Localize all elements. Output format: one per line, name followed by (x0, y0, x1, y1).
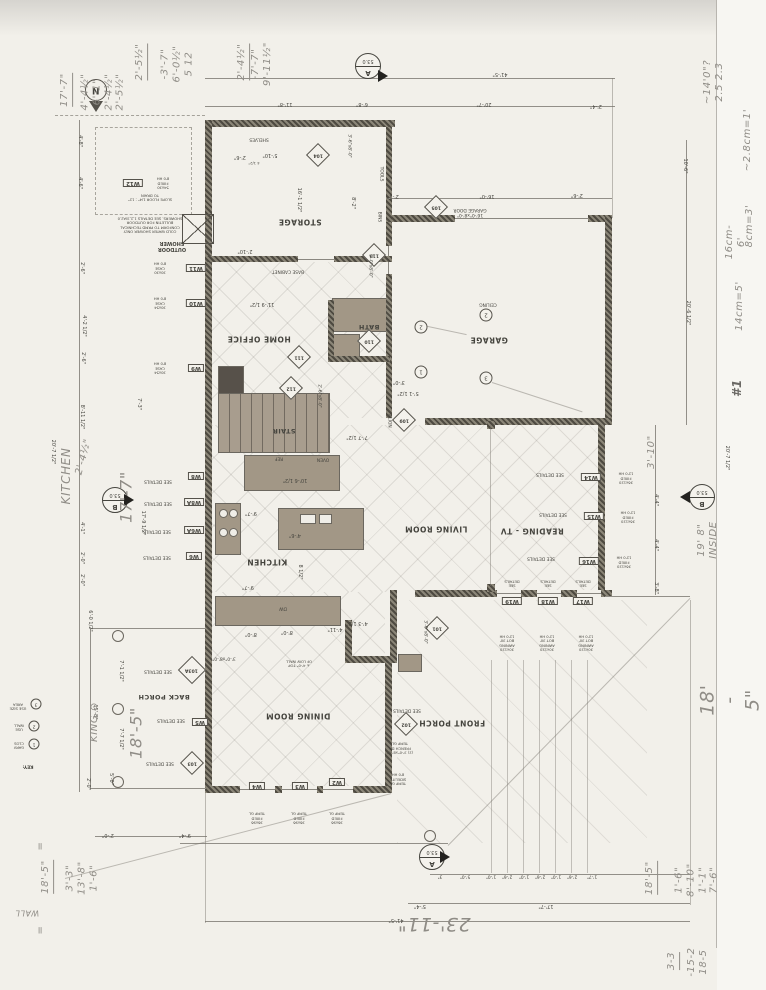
window-w17-opening (577, 590, 601, 597)
hand-br-calc1: 1'-6" 8'-10" 1'-1" 7'-6" (673, 863, 720, 897)
dim-top-total: 41'-5" (492, 70, 507, 76)
island-sink (300, 514, 316, 524)
keynote-2: 2 (415, 321, 428, 334)
island-sink-2 (319, 514, 332, 524)
label-oven: OVEN (317, 456, 329, 461)
wall-garage-south (425, 418, 612, 425)
dim: 11'-8" (277, 100, 292, 106)
window-tag-w11: W11 (186, 264, 206, 272)
note-slope: SLOPE FLOOR 1/4" : 12" TO DRAIN (128, 193, 172, 202)
dim: 5'-0" (107, 773, 113, 785)
label-dw: DW (279, 605, 287, 610)
hand-dim-310: 3'-10" (646, 435, 658, 469)
keynote-leader (427, 326, 466, 335)
dim: 9'-4" (179, 831, 191, 837)
label-ceiling: CEILING (479, 301, 497, 306)
dim: 5'-1 1/2" (397, 389, 418, 395)
dim: 4'-8" (76, 135, 82, 147)
window-spec-w10: 30x54 CASE 8'0 HH (154, 296, 166, 309)
label-tools: TOOLS (378, 167, 383, 182)
window-tag-w9: W9 (188, 364, 204, 372)
hand-br-calc1-result: 18'-5" (644, 861, 658, 895)
dim: 8'-2" (349, 197, 355, 209)
label-bins: BINS (376, 212, 381, 222)
dim: 8'-11 1/2" (78, 405, 84, 430)
window-tag-w6: W6 (186, 552, 202, 560)
note-sidelite: TEMP GL SIDELITE 8'0 HH (390, 772, 406, 785)
dim: 2'-1" (387, 192, 399, 198)
window-note-w17: SEE DETAILS (575, 579, 590, 588)
window-tag-w8: W8 (188, 472, 204, 480)
hand-calc-a-result: 2'-5½" (134, 44, 148, 81)
room-label-dining: DINING ROOM (266, 711, 331, 720)
window-note-w15: SEE DETAILS (539, 511, 567, 516)
reading-nook-post (487, 584, 495, 592)
hand-calc-a: -3'-7" 6'-0½" 5 12 (159, 46, 194, 83)
outdoor-shower-pan (182, 214, 214, 244)
extension-line (690, 600, 691, 905)
window-tag-w16: W16 (579, 557, 599, 565)
dim: 2'-6" (79, 352, 85, 364)
section-marker-a-top-arrow (378, 70, 388, 82)
dim: 7'-1 1/2" (117, 660, 123, 681)
key-item-1-label: GARV CLOS (14, 741, 24, 750)
wall-bath-west (328, 300, 334, 358)
window-spec-w12: 54x30 FIXED 8'0 HH (157, 176, 169, 189)
dim: 8'-0" (281, 628, 293, 634)
dim: 4'-1" (78, 522, 84, 534)
dim: 2'-6" (78, 262, 84, 274)
window-note-w14: SEE DETAILS (536, 471, 564, 476)
window-note-w16: SEE DETAILS (527, 555, 555, 560)
note-french-door: (2) 3'-0"x8'-0" FRENCH DR TEMP GL (387, 741, 413, 754)
hand-small-dim: 2'-4½" (74, 438, 95, 477)
window-note-w18: SEE DETAILS (540, 579, 555, 588)
window-note-w19: SEE DETAILS (504, 579, 519, 588)
wall-living-east (598, 418, 605, 592)
window-tag-w17: W17 (573, 597, 593, 605)
reading-nook-post (487, 421, 495, 429)
dim: 9'-7" (242, 583, 254, 589)
dim: 2'-0" (102, 831, 114, 837)
wall-bath-south (328, 356, 390, 362)
keynote-leader (492, 382, 583, 412)
porch-post (424, 830, 436, 842)
dim: 4'-11" (327, 625, 342, 631)
dim: 2'-10" (237, 247, 252, 253)
dim: 3" (438, 873, 443, 878)
dim: 4 1/2" (248, 161, 259, 165)
window-spec-w9: 30x54 CASE 8'0 HH (154, 361, 166, 374)
window-spec-w3: 36x96 FIXED TEMP GL (291, 811, 307, 824)
window-note-w6a: SEE DETAILS (143, 528, 171, 533)
hand-right-big-dim: 18' - 5" (696, 682, 763, 718)
porch-bench (398, 654, 422, 672)
window-spec-awning: 30x120 AWNING BOT 30' 12'0 HH (539, 634, 554, 651)
room-label-kitchen: KITCHEN (247, 557, 287, 566)
note-garage-door: 16'-0"x8'-0" GARAGE DOOR (453, 207, 486, 217)
hand-calc-topright: ~14'0"? 2.5 2.3 (702, 60, 726, 104)
label-outdoor-shower: OUTDOOR SHOWER (158, 239, 186, 251)
paper-edge-line (716, 0, 717, 948)
window-tag-w5: W5 (192, 718, 208, 726)
burner-icon (219, 509, 228, 518)
key-item-2-label: USE WALL (14, 723, 24, 732)
window-w2-opening (323, 786, 353, 793)
window-spec-w16: 36x120 FIXED 12'0 HH (617, 555, 632, 568)
dim: 16'-0" (479, 192, 494, 198)
window-tag-w10: W10 (186, 299, 206, 307)
dim-line (388, 198, 612, 199)
key-item-3-label: USE SIZE AREA (10, 702, 27, 711)
section-marker-b-right-arrow (680, 491, 690, 503)
room-label-living: LIVING ROOM (405, 524, 468, 533)
window-spec-w2: 36x96 FIXED TEMP GL (329, 811, 345, 824)
burner-icon (219, 528, 228, 537)
key-title: KEY: (23, 763, 34, 768)
dim-line (686, 140, 687, 425)
hand-number-1: #1 (730, 379, 744, 397)
dim: 7'-7 1/2" (117, 728, 123, 749)
label-ref: REF (275, 455, 283, 460)
hand-br-calc2-result: 3-3 (666, 952, 680, 970)
hand-calc-b-result: 2'-4½" (236, 44, 250, 81)
dim: 6'-8" (356, 100, 368, 106)
wall-garage-east (605, 215, 612, 425)
construction-dashed-rect (95, 127, 192, 215)
label-shelves: SHELVES (249, 136, 268, 141)
dim: 3'-8" (652, 582, 658, 594)
dim: 9'-7" (245, 509, 257, 515)
dim: 4'-2 1/2" (80, 315, 86, 336)
front-porch-edge-s (180, 843, 448, 844)
porch-post (112, 630, 124, 642)
burner-icon (229, 528, 238, 537)
dim: 20'-7 1/2" (723, 446, 729, 471)
door-tag-103: 103 (180, 751, 204, 775)
window-w19-opening (497, 590, 521, 597)
room-label-back-porch: BACK PORCH (138, 692, 190, 700)
hand-scale-note-3: 16cm-6' (724, 225, 748, 260)
hand-inside-note: 19' 8" INSIDE (696, 511, 720, 569)
dim: 6'-0 1/2" (86, 610, 92, 631)
dim: 2'-0" (84, 778, 90, 790)
room-label-storage: STORAGE (278, 217, 321, 226)
dim: 20'-7 1/2" (49, 440, 55, 465)
window-w18-opening (537, 590, 561, 597)
back-porch-edge-s (90, 788, 206, 789)
dim: 4'-6" (76, 177, 82, 189)
floor-plan-sheet: STORAGE GARAGE BATH HOME OFFICE STAIR KI… (0, 0, 766, 990)
kitchen-counter-south (215, 596, 341, 626)
door-104-opening (298, 256, 334, 262)
construction-dashed-line (55, 115, 205, 116)
window-tag-w19: W19 (502, 597, 522, 605)
window-spec-awning: 30x120 AWNING BOT 30' 12'0 HH (578, 634, 593, 651)
window-note-w5: SEE DETAILS (157, 717, 185, 722)
wall-storage-divider (386, 127, 392, 222)
note-back-door-size: 3'-0"x8'-0" (212, 655, 235, 660)
front-porch-edge-n (605, 596, 690, 597)
key-item-1-num: 1 (29, 739, 40, 750)
dim: 1'-0" (551, 873, 561, 878)
room-label-front-porch: FRONT PORCH (419, 718, 485, 727)
hand-bl-calc: 3'-3" 13'-8" 1'-6" (64, 861, 99, 895)
dim: 2'-0" (78, 574, 84, 586)
hand-scale-note-4: 14cm=5' (734, 281, 746, 331)
hand-kitchen-dim: 17'-7" (118, 471, 137, 523)
dim: 5'-4" (414, 902, 426, 908)
dim: 2'-0" (78, 552, 84, 564)
window-spec-awning: 30x120 AWNING BOT 30' 12'0 HH (499, 634, 514, 651)
dim: 7'-3" (135, 398, 141, 410)
dim: 4'-4" (652, 539, 658, 551)
hand-bottom-big-dim: 23'-11" (397, 913, 470, 935)
hand-bl-calc-result: 18'-5" (40, 860, 54, 894)
room-label-reading: READING - TV (500, 526, 563, 535)
window-tag-w12: W12 (123, 179, 143, 187)
window-spec-w14: 36x120 FIXED 12'0 HH (619, 471, 634, 484)
window-spec-w4: 36x96 FIXED TEMP GL (249, 811, 265, 824)
dim: 20'-7" (476, 100, 491, 106)
window-note-w6: SEE DETAILS (143, 554, 171, 559)
dim: 11'-9 1/2" (250, 300, 275, 306)
dim-line (205, 106, 615, 107)
window-note-w8a: SEE DETAILS (144, 500, 172, 505)
extension-line (612, 78, 613, 218)
hand-kitchen-word: KITCHEN (59, 448, 73, 505)
hand-nw-list: 4'-4½" 6'-1" 2'-4½" 2'-5½" (79, 74, 126, 111)
dim: 5'-0" (460, 873, 470, 878)
keynote-1: 1 (415, 366, 428, 379)
hand-scale-note-1: ~2.8cm=1' (742, 109, 754, 171)
label-base-cabinet: BASE CABINET (272, 268, 304, 273)
window-tag-w3: W3 (292, 782, 308, 790)
dim: 2'-6" (234, 153, 246, 159)
reading-nook-beam (490, 424, 491, 586)
window-tag-w8a: W8A (184, 498, 204, 506)
window-droplines (491, 660, 603, 873)
key-item-3-num: 3 (31, 699, 42, 710)
door-tag-103a: 103A (178, 656, 206, 684)
dim: 5'-10" (262, 151, 277, 157)
dim: 2'-6" (502, 873, 512, 878)
note-103-details: SEE DETAILS (146, 760, 174, 765)
dim: 20'-6 1/2" (684, 301, 690, 326)
dim: 7'-7 1/2" (346, 433, 367, 439)
window-tag-w14: W14 (581, 473, 601, 481)
dim: 4'-4" (652, 494, 658, 506)
dim: 8'-0" (245, 630, 257, 636)
dim: 2'-6" (567, 873, 577, 878)
section-marker-b-right: B53.0 (689, 484, 715, 510)
dim: 4'-3 1/2" (346, 619, 367, 625)
dim: 16'-1 1/2" (295, 188, 301, 213)
stair-treads (218, 393, 330, 453)
section-marker-a-bottom-arrow (440, 851, 450, 863)
note-door-101-size: 3'-0"x8'-0" (422, 620, 427, 643)
room-label-stair: STAIR (272, 426, 295, 434)
porch-post (112, 703, 124, 715)
hand-equals-mark: = (35, 926, 47, 935)
dim: 3'-0" (393, 378, 405, 384)
back-porch-edge-n (90, 628, 206, 629)
window-tag-w18: W18 (538, 597, 558, 605)
wall-porch-side (390, 590, 397, 663)
dim: 1'-7" (587, 873, 597, 878)
hand-nw-total: 17'-7" (59, 73, 73, 107)
hand-wall-note: WALL (15, 908, 39, 917)
door-tag-104: 104 (306, 143, 330, 167)
window-tag-w6a: W6A (184, 526, 204, 534)
note-door-113-size: 3'-0"x8'-0" (367, 254, 372, 277)
window-spec-w11: 30x30 CASE 8'0 HH (154, 261, 166, 274)
key-item-2-num: 2 (29, 721, 40, 732)
dim: 2'-4" (590, 102, 602, 108)
note-102-details: SEE DETAILS (393, 707, 421, 712)
window-spec-w15: 36x120 FIXED 12'0 HH (621, 510, 636, 523)
room-label-garage: GARAGE (470, 335, 508, 344)
keynote-3: 3 (480, 372, 493, 385)
hand-calc-b: -7'-7" 9'-11½" (250, 42, 274, 86)
burner-icon (229, 509, 238, 518)
keynote-2b: 2 (480, 309, 493, 322)
note-low-wall: ± 4'-0" TOP OF LOW WALL (286, 659, 312, 668)
note-storage-door-size: 3'-6"x8'-0" (346, 134, 351, 157)
wall-north (205, 120, 395, 127)
scan-shadow-band (0, 0, 766, 36)
label-align: ALIGN (386, 414, 391, 427)
dim: 10'-6" (681, 158, 687, 173)
wall-entry-south (345, 656, 397, 663)
window-tag-w15: W15 (584, 512, 604, 520)
window-note-w8: SEE DETAILS (144, 478, 172, 483)
window-tag-w4: W4 (249, 782, 265, 790)
hand-king-dim: 18'-5" (128, 707, 147, 759)
extension-line (205, 793, 206, 923)
dim: 1'-0" (486, 873, 496, 878)
note-shower: COLD WATER SHOWER ONLY CONFORM TO PRMD T… (118, 216, 183, 233)
window-tag-w2: W2 (329, 778, 345, 786)
dim: 17'-9 1/2" (139, 511, 145, 536)
wall-entry-west (345, 620, 352, 663)
bath-vanity (332, 334, 360, 358)
dim: 17'-7" (538, 902, 553, 908)
dim: 2'-6" (571, 191, 583, 197)
note-door-112-size: 2'-6"x8'-0" (316, 384, 321, 407)
dim: 1'-0" (519, 873, 529, 878)
room-label-home-office: HOME OFFICE (227, 334, 290, 343)
note-103a-details: SEE DETAILS (144, 668, 172, 673)
refrigerator-block (218, 366, 244, 394)
dim: 2'-6" (535, 873, 545, 878)
hand-king-word: KING ⊙ (89, 702, 101, 742)
dim: 10'-6 1/2" (283, 476, 308, 482)
dim: 8 1/2" (296, 564, 302, 579)
hand-br-calc2: -15-2 18-5 (686, 947, 710, 976)
hand-equals-mark: = (35, 842, 47, 851)
dim: 4'-6" (289, 531, 301, 537)
